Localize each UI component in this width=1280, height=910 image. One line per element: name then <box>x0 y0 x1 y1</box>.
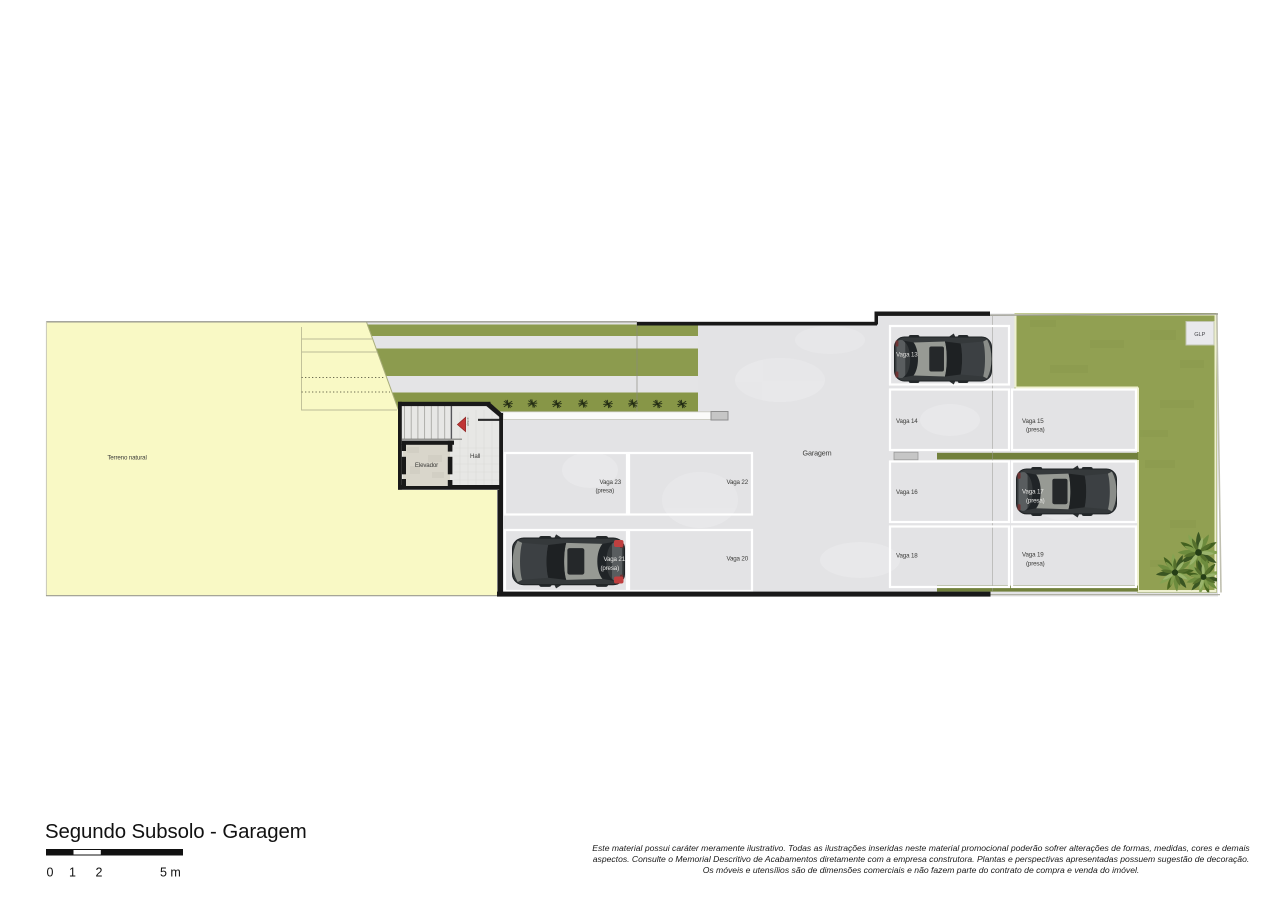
svg-text:Hall: Hall <box>470 453 480 460</box>
svg-text:Elevador: Elevador <box>415 462 438 469</box>
svg-text:(presa): (presa) <box>1026 427 1045 434</box>
svg-text:2: 2 <box>96 866 103 880</box>
svg-text:(presa): (presa) <box>600 565 619 572</box>
svg-text:Vaga 13: Vaga 13 <box>896 352 918 359</box>
svg-text:Vaga 16: Vaga 16 <box>896 489 918 496</box>
svg-text:5 m: 5 m <box>160 866 181 880</box>
svg-text:Os móveis e utensílios são de: Os móveis e utensílios são de dimensões … <box>703 865 1140 875</box>
svg-text:1: 1 <box>69 866 76 880</box>
svg-text:Vaga 17: Vaga 17 <box>1022 489 1044 496</box>
svg-text:Vaga 22: Vaga 22 <box>726 479 748 486</box>
svg-text:desce: desce <box>466 417 470 426</box>
svg-text:Vaga 21: Vaga 21 <box>603 556 625 563</box>
svg-text:GLP: GLP <box>1194 332 1205 338</box>
svg-text:Vaga 18: Vaga 18 <box>896 553 918 560</box>
svg-text:Garagem: Garagem <box>803 449 832 458</box>
svg-text:Vaga 23: Vaga 23 <box>599 479 621 486</box>
svg-text:(presa): (presa) <box>1026 498 1045 505</box>
svg-text:Este material possui caráter m: Este material possui caráter meramente i… <box>592 843 1250 853</box>
svg-text:(presa): (presa) <box>595 488 614 495</box>
svg-text:Vaga 15: Vaga 15 <box>1022 418 1044 425</box>
svg-text:0: 0 <box>47 866 54 880</box>
svg-text:Segundo Subsolo - Garagem: Segundo Subsolo - Garagem <box>45 821 307 843</box>
svg-text:Terreno natural: Terreno natural <box>107 455 146 462</box>
svg-text:(presa): (presa) <box>1026 561 1045 568</box>
svg-text:aspectos. Consulte o Memorial: aspectos. Consulte o Memorial Descritivo… <box>593 854 1250 864</box>
svg-text:Vaga 14: Vaga 14 <box>896 418 918 425</box>
svg-text:Vaga 19: Vaga 19 <box>1022 552 1044 559</box>
svg-text:Vaga 20: Vaga 20 <box>726 556 748 563</box>
